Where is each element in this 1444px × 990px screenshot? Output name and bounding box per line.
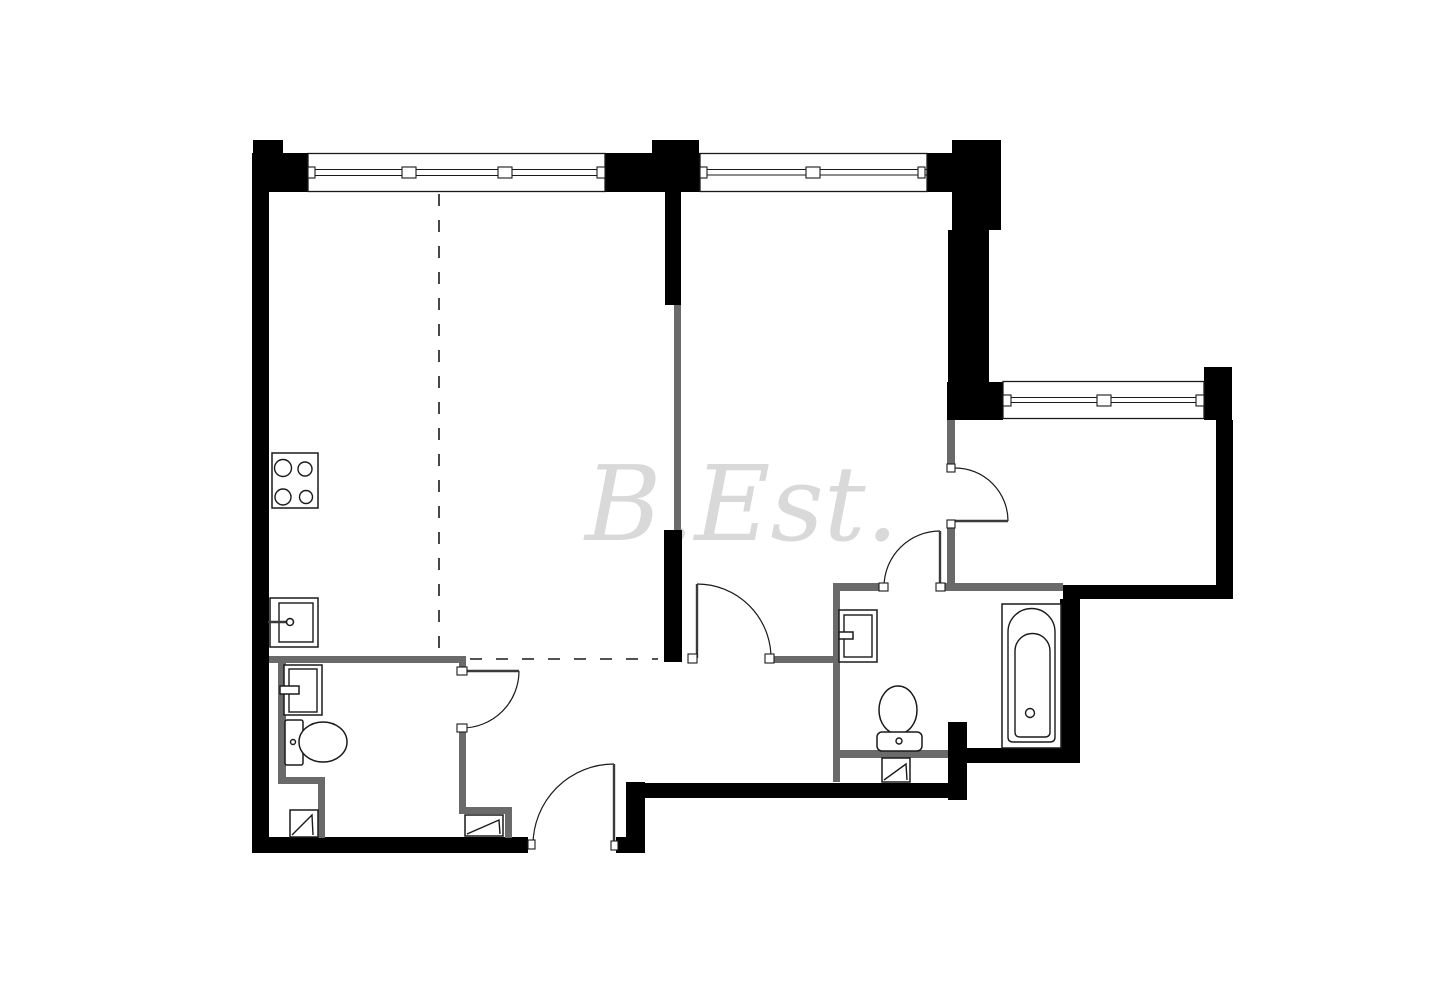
watermark-text: B.Est.	[583, 443, 899, 565]
wall-far-right	[1216, 420, 1233, 599]
wall-bath-right	[1060, 599, 1080, 763]
window-mullion	[700, 167, 707, 178]
window-mullion	[308, 167, 315, 178]
door-living-room	[688, 584, 774, 663]
door-entry	[528, 764, 618, 850]
door-jamb	[688, 654, 697, 663]
bathtub-icon	[1002, 604, 1061, 748]
sink-faucet-head	[287, 619, 294, 626]
door-jamb	[947, 520, 955, 528]
wall-right-room-bottom	[1063, 585, 1216, 599]
window3-left-pillar	[947, 382, 1003, 420]
window-mullion	[806, 167, 820, 178]
right-bathroom-sink-icon	[839, 610, 877, 662]
sink-faucet	[280, 686, 299, 694]
ventilation-shaft-icon	[465, 815, 503, 836]
partition-lb-niche-right	[505, 814, 512, 838]
stove-icon	[272, 453, 318, 508]
left-bathroom-sink-icon	[280, 665, 322, 715]
divider-wall-lower	[664, 530, 682, 662]
partition-lb-right	[459, 731, 466, 808]
wall-bath-bottom	[967, 748, 1080, 763]
left-bathroom-toilet-icon	[285, 720, 347, 765]
floor-plan-drawing: B.Est.	[0, 0, 1444, 990]
door-jamb	[947, 464, 955, 472]
door-right-room	[947, 464, 1008, 528]
door-left-bathroom	[457, 667, 519, 732]
door-swing-icon	[533, 764, 614, 845]
wall-hall-bottom	[645, 783, 948, 798]
toilet-tank	[877, 732, 922, 751]
wall-bottom-right-of-door	[616, 837, 645, 853]
window-1	[308, 154, 605, 192]
wall-right-column	[948, 230, 989, 382]
wall-bath-left-column	[948, 722, 967, 800]
ventilation-shaft-icon	[290, 810, 318, 837]
wall-top-right-connector	[927, 153, 953, 192]
door-jamb	[528, 840, 535, 849]
partition-lb-vent-top	[278, 777, 325, 784]
partition-rb-top-left	[833, 583, 881, 591]
door-swing-icon	[462, 671, 519, 728]
wall-left	[252, 162, 269, 853]
wall-corner-top-right	[952, 140, 1001, 230]
ventilation-shaft-icon	[882, 758, 910, 782]
window-mullion	[1097, 395, 1111, 406]
divider-wall-upper	[674, 305, 681, 530]
dashed-dividers	[439, 194, 658, 659]
toilet-bowl	[299, 722, 347, 762]
door-jamb	[879, 583, 888, 591]
window3-right-pillar	[1204, 367, 1232, 420]
partition-lb-vent-right	[318, 784, 325, 838]
window-mullion	[498, 167, 512, 178]
partition-hall-top-left	[269, 656, 466, 663]
door-jamb	[936, 583, 945, 591]
right-bathroom-toilet-icon	[877, 686, 922, 751]
window-mullion	[1196, 395, 1204, 406]
door-jamb	[457, 667, 467, 675]
door-swing-icon	[697, 584, 771, 658]
bathtub-outer	[1002, 604, 1061, 748]
partition-hall-top-right	[773, 656, 833, 663]
window-frame	[308, 154, 605, 192]
partition-lb-niche-bottom	[459, 807, 512, 814]
door-swing-icon	[955, 468, 1008, 521]
door-jamb	[765, 654, 774, 663]
partition-rr-left-lower	[947, 527, 955, 583]
door-jamb	[611, 841, 618, 850]
partition-rr-left-upper	[947, 420, 955, 465]
partition-rb-top-right	[944, 583, 1063, 591]
floor-plan-canvas: B.Est.	[0, 0, 1444, 990]
wall-top-middle-bump	[652, 140, 699, 157]
kitchen-sink-icon	[268, 598, 318, 647]
window-mullion	[1003, 395, 1011, 406]
toilet-bowl	[879, 686, 917, 734]
pillar-middle	[665, 192, 681, 305]
window-2	[700, 154, 927, 192]
window-mullion	[402, 167, 416, 178]
window-3	[1003, 382, 1204, 419]
door-jamb	[457, 724, 467, 732]
wall-top-middle	[605, 153, 700, 192]
wall-bottom-left	[269, 837, 528, 853]
window-mullion	[918, 167, 925, 178]
sink-faucet	[839, 632, 853, 639]
window-mullion	[597, 167, 605, 178]
